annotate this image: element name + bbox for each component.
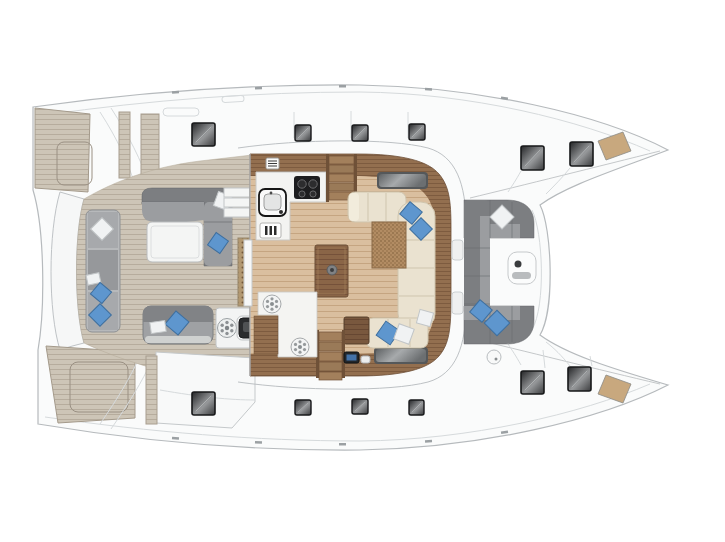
roof-support-strip-3	[146, 356, 157, 424]
deck-hatch	[352, 399, 368, 414]
side-deck-steps	[224, 188, 250, 217]
transom-bench	[86, 210, 120, 332]
skylight-starboard	[374, 347, 428, 364]
sliding-door	[244, 240, 252, 306]
deck-hatch	[295, 125, 311, 141]
stove-icon	[294, 176, 320, 199]
sink-icon	[259, 189, 286, 216]
cockpit-pod	[508, 252, 536, 284]
cockpit-table	[147, 222, 203, 262]
deck-hatch	[409, 400, 424, 415]
winch-icon	[218, 319, 237, 338]
coffee-table	[344, 317, 369, 344]
deck-hatch	[521, 146, 544, 170]
saloon-table	[315, 245, 348, 297]
pillow	[416, 309, 433, 326]
side-pad	[452, 292, 463, 314]
aft-corridor	[254, 292, 317, 357]
deck-hatch	[192, 123, 215, 146]
roof-support-strip-1	[119, 112, 130, 178]
deck-hatch	[409, 124, 425, 140]
deck-hatch	[295, 400, 311, 415]
deck-plan-drawing	[0, 0, 725, 542]
stool-icon	[291, 338, 309, 356]
stairs-starboard-hull	[316, 330, 345, 380]
roof-support-strip-2	[141, 114, 159, 178]
corridor-cabinet	[254, 316, 278, 354]
side-pad	[452, 240, 463, 260]
deck-hatch	[352, 125, 368, 141]
skylight-port	[377, 172, 428, 189]
pillow	[150, 321, 166, 334]
vent-icon	[266, 158, 279, 169]
cockpit-bench-aft	[143, 306, 213, 344]
dining-table	[372, 222, 406, 268]
deck-hatch	[192, 392, 215, 415]
catamaran-deck-plan	[0, 0, 725, 542]
deck-fill-cap	[487, 350, 501, 364]
deck-hatch	[568, 367, 591, 391]
saloon	[238, 141, 466, 389]
pillow	[86, 273, 101, 285]
deck-hatch	[521, 371, 544, 394]
cutlery-icon	[260, 223, 281, 238]
deck-hatch	[570, 142, 593, 166]
transom-steps-module	[156, 352, 255, 428]
nav-device	[361, 356, 370, 363]
stool-icon	[263, 295, 281, 313]
swim-platform-port	[35, 108, 90, 192]
